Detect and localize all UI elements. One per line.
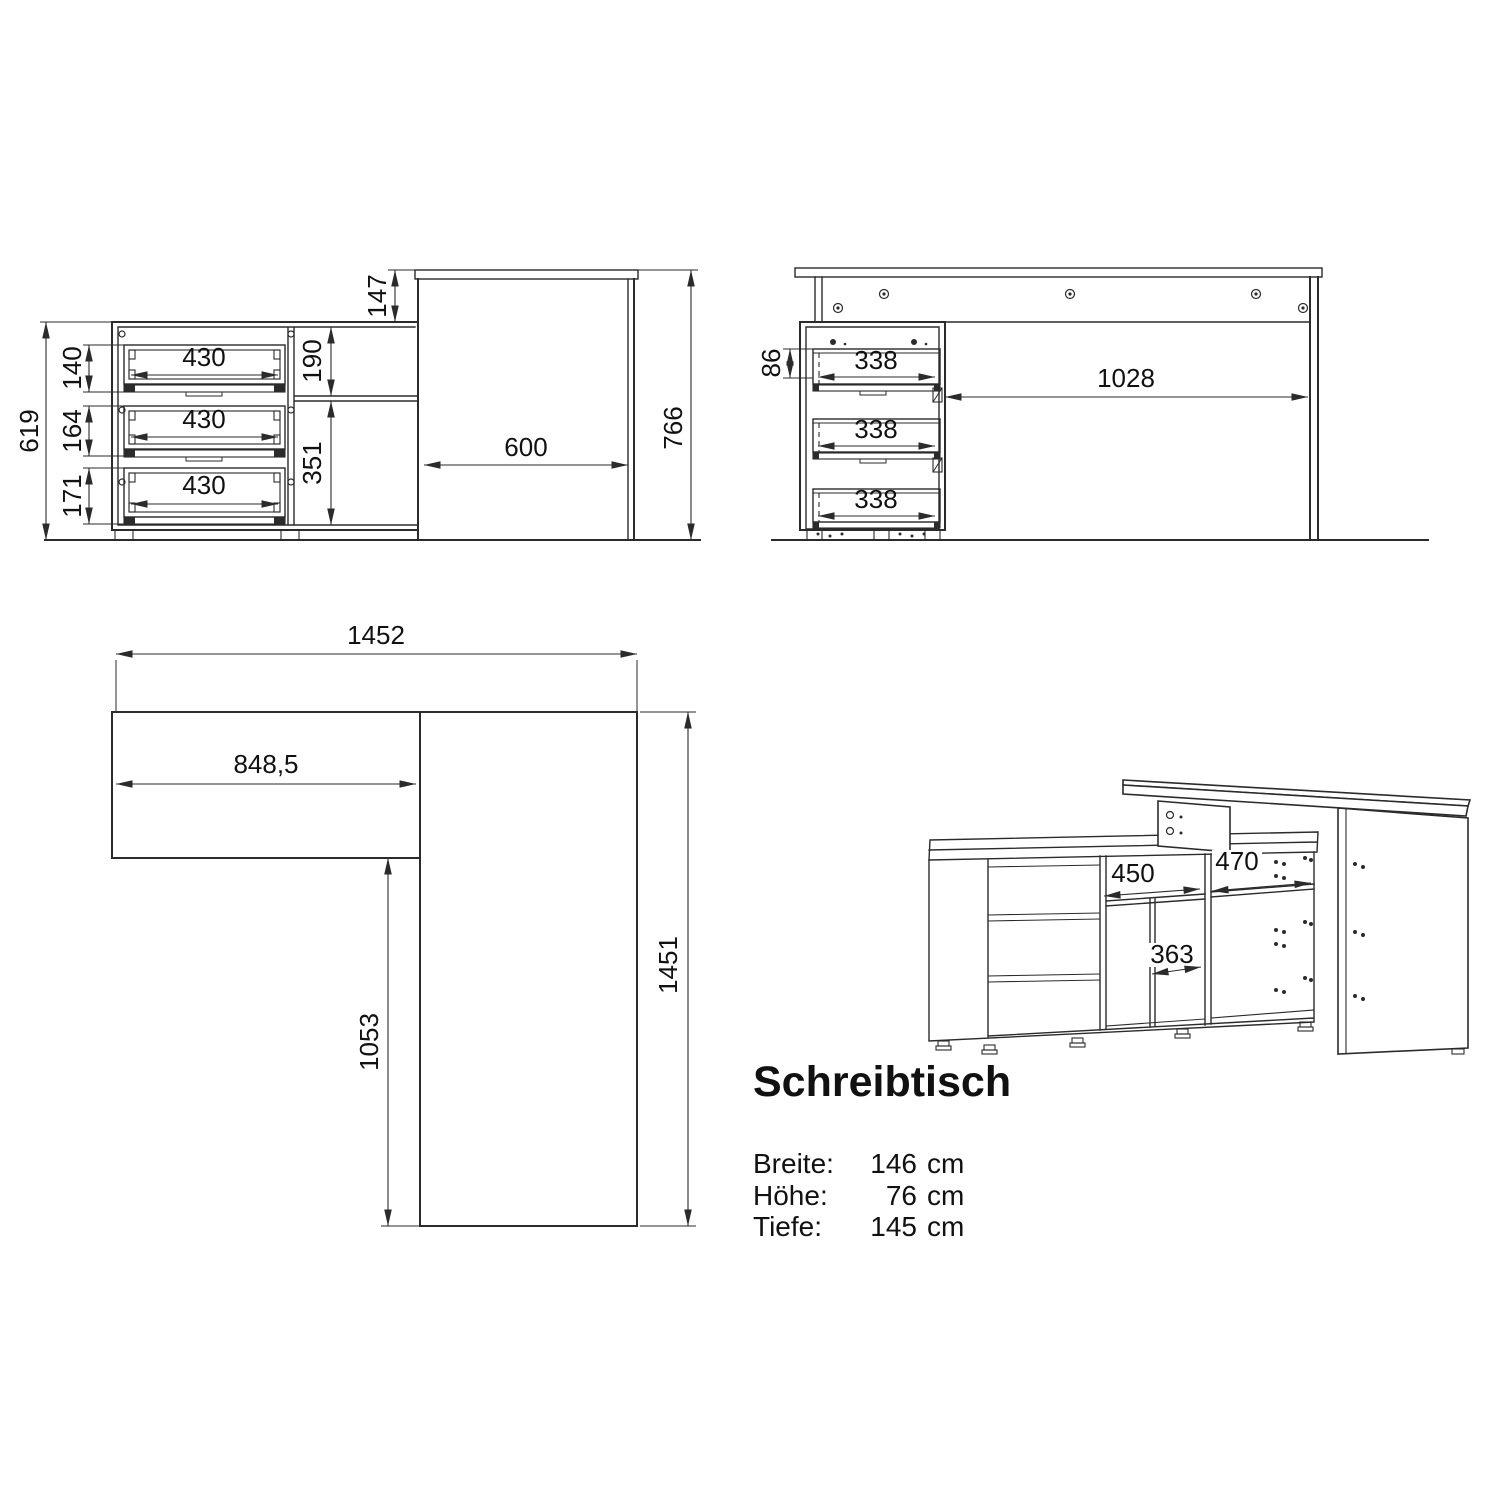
dim-label-619: 619 <box>14 409 44 452</box>
iso-support-panel <box>1158 801 1230 852</box>
dim-190: 190 <box>297 327 331 396</box>
dim-766: 766 <box>638 270 698 540</box>
spec-label: Breite: <box>753 1148 865 1180</box>
dim-363: 363 <box>1148 939 1201 974</box>
dim-label-drawer-width: 430 <box>182 342 225 372</box>
front-elevation-view: 430 430 430 <box>14 270 700 540</box>
technical-drawing-canvas: 430 430 430 <box>0 0 1500 1500</box>
drawer-2: 430 <box>124 404 285 461</box>
back-elevation-view: 338 338 338 86 1028 <box>756 268 1428 540</box>
dim-label-147: 147 <box>362 274 392 317</box>
dim-label-1028: 1028 <box>1097 363 1155 393</box>
spec-unit: cm <box>927 1180 964 1212</box>
dim-label-766: 766 <box>658 406 688 449</box>
dim-label-848-5: 848,5 <box>233 749 298 779</box>
spec-value: 145 <box>865 1211 917 1243</box>
spec-row-hoehe: Höhe:76cm <box>753 1180 964 1212</box>
spec-label: Höhe: <box>753 1180 865 1212</box>
dim-label-470: 470 <box>1215 846 1258 876</box>
dim-86: 86 <box>756 349 813 378</box>
dim-1053: 1053 <box>354 858 420 1226</box>
sideboard-front-outline <box>112 322 418 540</box>
dim-label-1452: 1452 <box>347 620 405 650</box>
dim-351: 351 <box>297 401 331 525</box>
specs-table: Breite:146cm Höhe:76cm Tiefe:145cm <box>753 1148 964 1243</box>
dim-label-140: 140 <box>57 346 87 389</box>
spec-row-tiefe: Tiefe:145cm <box>753 1211 964 1243</box>
dim-label-190: 190 <box>297 339 327 382</box>
dim-label-back-drawer: 338 <box>854 345 897 375</box>
dim-label-171: 171 <box>57 474 87 517</box>
product-title: Schreibtisch <box>753 1058 1011 1107</box>
foot <box>115 530 133 540</box>
foot <box>281 530 299 540</box>
dim-label-86: 86 <box>756 349 786 378</box>
dim-147: 147 <box>362 270 415 322</box>
dim-164: 164 <box>57 406 124 456</box>
dim-1451: 1451 <box>640 712 696 1226</box>
spec-value: 76 <box>865 1180 917 1212</box>
foot <box>874 530 889 540</box>
isometric-view: 450 470 363 <box>929 780 1470 1054</box>
dim-1028: 1028 <box>945 363 1308 397</box>
dim-140: 140 <box>57 345 124 392</box>
plan-view: 1452 848,5 1053 1451 <box>112 620 696 1226</box>
desk-side-panel-front <box>415 270 638 540</box>
dim-450: 450 <box>1104 858 1200 896</box>
dim-label-351: 351 <box>297 441 327 484</box>
dim-171: 171 <box>57 468 124 524</box>
dim-848-5: 848,5 <box>116 749 416 784</box>
spec-unit: cm <box>927 1211 964 1243</box>
foot <box>925 530 940 540</box>
dim-600: 600 <box>424 432 628 465</box>
back-drawer-2: 338 <box>813 414 940 463</box>
dim-label-drawer-width: 430 <box>182 470 225 500</box>
spec-label: Tiefe: <box>753 1211 865 1243</box>
spec-row-breite: Breite:146cm <box>753 1148 964 1180</box>
foot <box>807 530 822 540</box>
dim-label-1451: 1451 <box>653 936 683 994</box>
plan-outline <box>112 712 637 1226</box>
back-drawer-3: 338 <box>813 484 940 528</box>
dim-label-450: 450 <box>1111 858 1154 888</box>
dim-label-back-drawer: 338 <box>854 414 897 444</box>
spec-unit: cm <box>927 1148 964 1180</box>
spec-value: 146 <box>865 1148 917 1180</box>
dim-label-600: 600 <box>504 432 547 462</box>
back-drawer-1: 338 <box>813 345 940 395</box>
drawer-1: 430 <box>124 342 285 396</box>
drawer-3: 430 <box>124 468 285 524</box>
dim-label-164: 164 <box>57 409 87 452</box>
dim-label-363: 363 <box>1150 939 1193 969</box>
dim-label-drawer-width: 430 <box>182 404 225 434</box>
apron-screws <box>834 290 1308 313</box>
iso-desk-side-panel <box>1338 808 1468 1054</box>
dim-label-back-drawer: 338 <box>854 484 897 514</box>
dim-label-1053: 1053 <box>354 1013 384 1071</box>
dim-1452: 1452 <box>116 620 637 712</box>
shelf-pin-holes <box>1274 856 1313 994</box>
